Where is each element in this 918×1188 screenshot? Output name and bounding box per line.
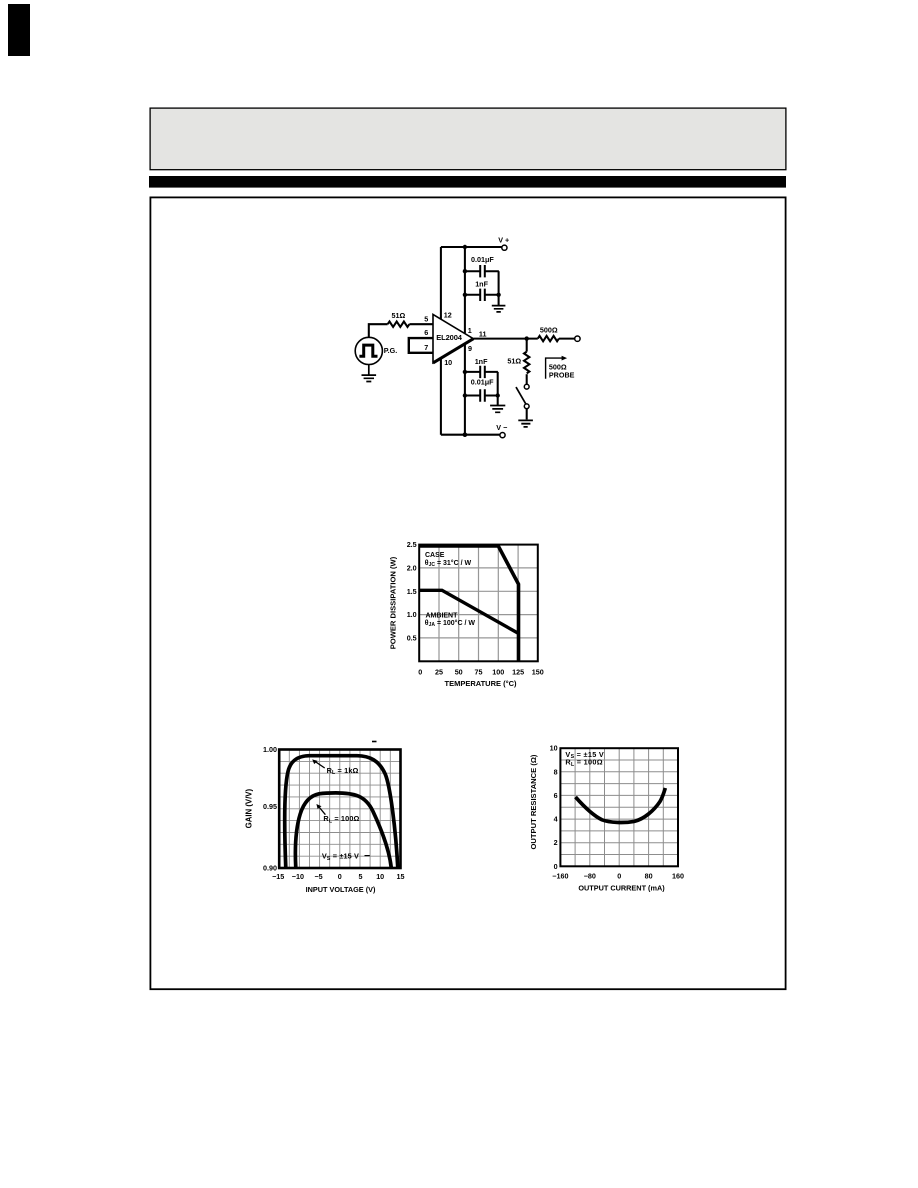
- svg-text:10: 10: [550, 744, 558, 753]
- svg-text:INPUT VOLTAGE (V): INPUT VOLTAGE (V): [306, 885, 376, 894]
- svg-text:125: 125: [512, 667, 524, 676]
- svg-text:−10: −10: [292, 872, 304, 881]
- svg-text:5: 5: [359, 872, 363, 881]
- svg-text:51Ω: 51Ω: [507, 357, 521, 366]
- svg-text:11: 11: [479, 329, 487, 338]
- svg-text:GAIN (V/V): GAIN (V/V): [245, 788, 254, 828]
- svg-text:15: 15: [397, 872, 405, 881]
- svg-text:6: 6: [554, 791, 558, 800]
- svg-text:2: 2: [554, 838, 558, 847]
- svg-text:1.00: 1.00: [263, 745, 277, 754]
- svg-text:4: 4: [554, 815, 558, 824]
- svg-text:1.0: 1.0: [407, 610, 417, 619]
- svg-text:−160: −160: [552, 871, 568, 880]
- svg-text:51Ω: 51Ω: [392, 311, 406, 320]
- svg-text:80: 80: [645, 871, 653, 880]
- svg-text:9: 9: [468, 344, 472, 353]
- svg-text:0: 0: [338, 872, 342, 881]
- svg-text:0: 0: [418, 667, 422, 676]
- svg-text:0.01μF: 0.01μF: [471, 378, 494, 387]
- svg-text:100: 100: [492, 667, 504, 676]
- svg-text:V +: V +: [498, 236, 509, 245]
- svg-text:AMBIENT: AMBIENT: [426, 612, 459, 619]
- svg-text:P.G.: P.G.: [384, 346, 397, 355]
- svg-text:6: 6: [424, 328, 428, 337]
- svg-text:10: 10: [376, 872, 384, 881]
- svg-text:CASE: CASE: [425, 552, 445, 559]
- svg-text:160: 160: [672, 871, 684, 880]
- svg-text:1nF: 1nF: [475, 279, 488, 288]
- svg-text:V −: V −: [496, 423, 507, 432]
- svg-text:0.01μF: 0.01μF: [471, 255, 494, 264]
- svg-text:1nF: 1nF: [475, 357, 488, 366]
- svg-text:2.5: 2.5: [407, 540, 417, 549]
- svg-text:8: 8: [554, 767, 558, 776]
- svg-text:5: 5: [424, 315, 428, 324]
- svg-text:75: 75: [475, 667, 483, 676]
- svg-text:12: 12: [444, 311, 452, 320]
- svg-text:0: 0: [617, 871, 621, 880]
- svg-text:OUTPUT RESISTANCE (Ω): OUTPUT RESISTANCE (Ω): [529, 754, 538, 849]
- svg-text:50: 50: [455, 667, 463, 676]
- svg-text:500Ω: 500Ω: [540, 325, 558, 334]
- svg-text:OUTPUT CURRENT (mA): OUTPUT CURRENT (mA): [578, 884, 665, 893]
- svg-text:1.5: 1.5: [407, 587, 417, 596]
- svg-text:150: 150: [532, 667, 544, 676]
- svg-text:7: 7: [424, 343, 428, 352]
- svg-text:RL = 100Ω: RL = 100Ω: [323, 814, 359, 824]
- svg-text:0.5: 0.5: [407, 633, 417, 642]
- svg-text:TEMPERATURE (°C): TEMPERATURE (°C): [444, 679, 517, 688]
- svg-text:POWER DISSIPATION (W): POWER DISSIPATION (W): [389, 556, 398, 649]
- svg-text:0: 0: [554, 862, 558, 871]
- svg-text:EL2004: EL2004: [436, 333, 463, 342]
- svg-text:RL = 1kΩ: RL = 1kΩ: [327, 766, 359, 776]
- svg-text:−5: −5: [314, 872, 322, 881]
- svg-text:1: 1: [468, 326, 472, 335]
- svg-text:10: 10: [444, 358, 452, 367]
- svg-text:25: 25: [435, 667, 443, 676]
- svg-text:−80: −80: [584, 871, 596, 880]
- svg-text:2.0: 2.0: [407, 563, 417, 572]
- svg-text:0.95: 0.95: [263, 802, 277, 811]
- svg-text:PROBE: PROBE: [549, 370, 575, 379]
- svg-text:−15: −15: [272, 872, 284, 881]
